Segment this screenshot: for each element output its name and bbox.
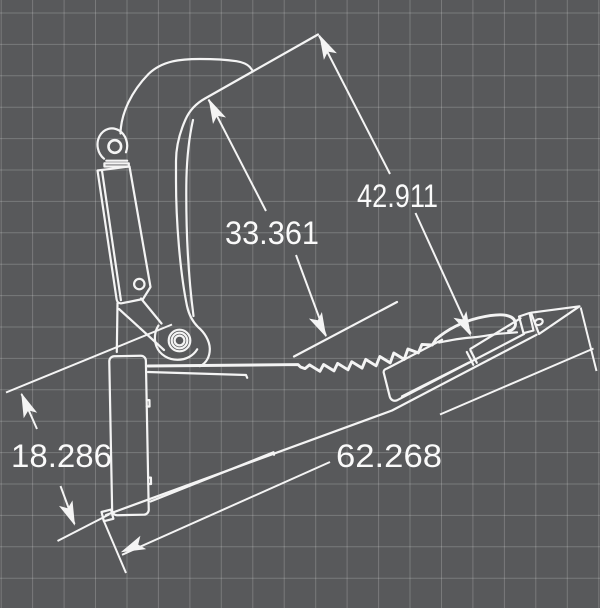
svg-text:62.268: 62.268	[336, 438, 442, 474]
svg-text:18.286: 18.286	[11, 438, 112, 474]
svg-text:33.361: 33.361	[225, 215, 319, 251]
svg-text:42.911: 42.911	[357, 178, 438, 214]
